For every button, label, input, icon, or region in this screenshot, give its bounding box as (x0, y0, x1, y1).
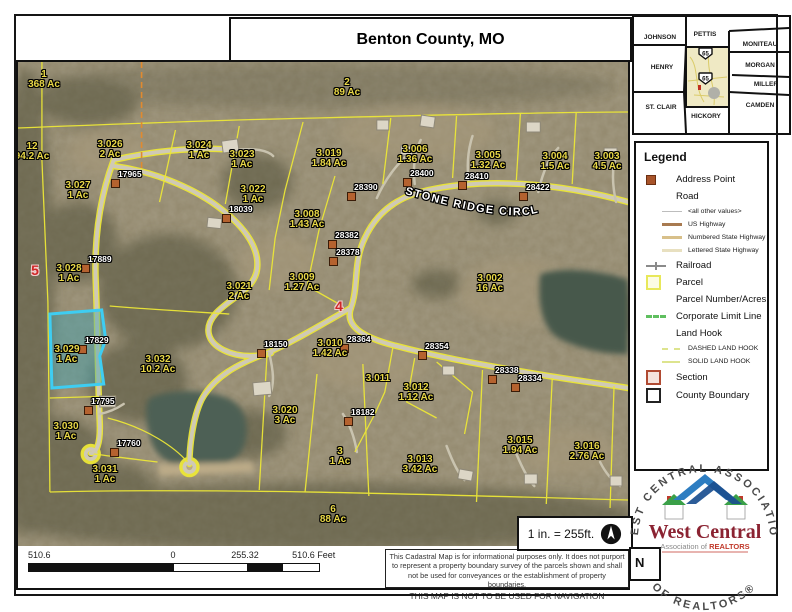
parcel-label-3.016[interactable]: 3.0162.76 Ac (570, 442, 605, 462)
parcel-label-3.008[interactable]: 3.0081.43 Ac (290, 210, 325, 230)
other-road-symbol (662, 211, 682, 212)
address-point-symbol (646, 175, 656, 185)
address-point-label-17889: 17889 (88, 254, 112, 264)
legend-label-dashed-land-hook: DASHED LAND HOOK (688, 345, 758, 352)
legend-label-lettered-state-highway: Lettered State Highway (688, 247, 759, 254)
legend-label-county-boundary: County Boundary (676, 390, 749, 401)
address-point-28334[interactable] (511, 383, 520, 392)
parcel-label-12[interactable]: 1294.2 Ac (18, 142, 49, 162)
address-point-label-28364: 28364 (347, 334, 371, 344)
legend-label-us-highway: US Highway (688, 221, 725, 228)
inset-county-label: MONITEAU (743, 41, 778, 48)
logo-name: West Central (649, 521, 762, 543)
parcel-label-3.030[interactable]: 3.0301 Ac (53, 422, 78, 442)
county-locator-map: JOHNSON PETTIS MONITEAU HENRY MORGAN MIL… (634, 17, 789, 133)
parcel-label-3.004[interactable]: 3.0041.5 Ac (540, 152, 569, 172)
parcel-label-3.024[interactable]: 3.0241 Ac (186, 141, 211, 161)
address-point-28422[interactable] (519, 192, 528, 201)
parcel-label-3.010[interactable]: 3.0101.42 Ac (313, 339, 348, 359)
legend-label-solid-land-hook: SOLID LAND HOOK (688, 358, 750, 365)
us-highway-symbol (662, 223, 682, 226)
solid-land-hook-symbol (662, 361, 680, 363)
county-boundary-symbol (646, 388, 661, 403)
legend-panel: Legend Address Point Road <all other val… (634, 141, 769, 471)
inset-county-label: PETTIS (694, 31, 717, 38)
parcel-label-3.002[interactable]: 3.00216 Ac (477, 274, 503, 294)
parcel-label-3.009[interactable]: 3.0091.27 Ac (285, 273, 320, 293)
corporate-limit-symbol (646, 315, 666, 318)
address-point-17965[interactable] (111, 179, 120, 188)
scale-note-box: 1 in. = 255ft. (517, 516, 633, 551)
scale-bar-segments (28, 563, 320, 572)
address-point-label-28338: 28338 (495, 365, 519, 375)
parcel-label-3.020[interactable]: 3.0203 Ac (272, 406, 297, 426)
parcel-label-3.003[interactable]: 3.0034.5 Ac (592, 152, 621, 172)
inset-city-mark (698, 85, 701, 90)
scale-label-zero: 0 (170, 550, 175, 560)
section-symbol (646, 370, 661, 385)
map-footer-strip: 510.6 0 255.32 510.6 Feet This Cadastral… (18, 546, 628, 588)
inset-county-label: MORGAN (745, 62, 775, 69)
parcel-label-3.029[interactable]: 3.0291 Ac (54, 345, 79, 365)
parcel-symbol (646, 275, 661, 290)
scale-note-text: 1 in. = 255ft. (528, 527, 594, 541)
address-point-label-17829: 17829 (85, 335, 109, 345)
disclaimer-text: This Cadastral Map is for informational … (386, 552, 628, 590)
svg-text:65: 65 (702, 52, 709, 58)
parcel-label-1[interactable]: 1368 Ac (28, 70, 60, 90)
inset-county-label: MILLER (754, 81, 778, 88)
address-point-28400[interactable] (403, 178, 412, 187)
scale-bar: 510.6 0 255.32 510.6 Feet (28, 550, 318, 580)
legend-label-road: Road (676, 191, 699, 202)
address-point-label-28382: 28382 (335, 230, 359, 240)
county-locator-inset: JOHNSON PETTIS MONITEAU HENRY MORGAN MIL… (632, 15, 791, 135)
parcel-label-3.021[interactable]: 3.0212 Ac (226, 282, 251, 302)
map-canvas[interactable]: STONE RIDGE CIRCLE 1368 Ac289 Ac1294.2 A… (18, 62, 628, 546)
section-number-5: 5 (31, 262, 39, 278)
parcel-label-3.006[interactable]: 3.0061.36 Ac (398, 145, 433, 165)
address-point-28338[interactable] (488, 375, 497, 384)
legend-label-land-hook: Land Hook (676, 328, 722, 339)
numbered-state-highway-symbol (662, 236, 682, 239)
scale-label-right: 510.6 Feet (292, 550, 335, 560)
parcel-label-3.022[interactable]: 3.0221 Ac (240, 185, 265, 205)
address-point-28410[interactable] (458, 181, 467, 190)
logo-subtitle-realtors: REALTORS (709, 542, 750, 551)
scale-label-left: 510.6 (28, 550, 51, 560)
address-point-28378[interactable] (329, 257, 338, 266)
address-point-28390[interactable] (347, 192, 356, 201)
parcel-label-3.015[interactable]: 3.0151.94 Ac (503, 436, 538, 456)
logo-subtitle-prefix: Association of (660, 542, 709, 551)
parcel-label-3.028[interactable]: 3.0281 Ac (56, 264, 81, 284)
parcel-label-3.031[interactable]: 3.0311 Ac (92, 465, 117, 485)
address-point-label-28378: 28378 (336, 247, 360, 257)
parcel-label-3.026[interactable]: 3.0262 Ac (97, 140, 122, 160)
parcel-label-3.032[interactable]: 3.03210.2 Ac (141, 355, 176, 375)
parcel-label-3.027[interactable]: 3.0271 Ac (65, 181, 90, 201)
parcel-label-6[interactable]: 688 Ac (320, 505, 346, 525)
inset-lake (708, 87, 720, 99)
address-point-label-17795: 17795 (91, 396, 115, 406)
address-point-18182[interactable] (344, 417, 353, 426)
svg-text:65: 65 (702, 77, 709, 83)
address-point-17760[interactable] (110, 448, 119, 457)
page-title: Benton County, MO (356, 31, 504, 49)
inset-county-label: JOHNSON (644, 34, 676, 41)
legend-label-all-other-values: <all other values> (688, 208, 742, 215)
address-point-label-28390: 28390 (354, 182, 378, 192)
parcel-label-2[interactable]: 289 Ac (334, 78, 360, 98)
parcel-label-3[interactable]: 31 Ac (330, 447, 351, 467)
address-point-label-17965: 17965 (118, 169, 142, 179)
address-point-label-18150: 18150 (264, 339, 288, 349)
disclaimer-warning: THIS MAP IS NOT TO BE USED FOR NAVIGATIO… (386, 591, 628, 601)
map-frame: STONE RIDGE CIRCLE 1368 Ac289 Ac1294.2 A… (16, 60, 630, 590)
address-point-label-28422: 28422 (526, 182, 550, 192)
logo-ring-text-bottom: OF REALTORS® (649, 581, 758, 612)
dashed-land-hook-symbol (662, 348, 680, 350)
address-point-18039[interactable] (222, 214, 231, 223)
legend-label-parcel-number-acres: Parcel Number/Acres (676, 294, 766, 305)
svg-text:Association of REALTORS: Association of REALTORS (660, 542, 749, 551)
legend-label-address-point: Address Point (676, 174, 735, 185)
address-point-label-28354: 28354 (425, 341, 449, 351)
inset-county-label: HICKORY (691, 113, 721, 120)
address-point-label-28334: 28334 (518, 373, 542, 383)
legend-label-railroad: Railroad (676, 260, 711, 271)
parcel-label-3.023[interactable]: 3.0231 Ac (229, 150, 254, 170)
parcel-label-3.005[interactable]: 3.0051.32 Ac (471, 151, 506, 171)
inset-county-label: ST. CLAIR (645, 104, 676, 111)
disclaimer-box: This Cadastral Map is for informational … (385, 549, 629, 588)
address-point-17889[interactable] (81, 264, 90, 273)
section-number-4: 4 (335, 298, 343, 314)
parcel-label-3.011[interactable]: 3.011 (366, 374, 390, 384)
lettered-state-highway-symbol (662, 249, 682, 252)
address-point-label-28400: 28400 (410, 168, 434, 178)
railroad-symbol (646, 265, 666, 267)
legend-label-section: Section (676, 372, 708, 383)
map-label-layer: 1368 Ac289 Ac1294.2 Ac3.0262 Ac3.0241 Ac… (18, 62, 628, 546)
legend-label-parcel: Parcel (676, 277, 703, 288)
parcel-label-3.012[interactable]: 3.0121.12 Ac (399, 383, 434, 403)
legend-title: Legend (644, 150, 767, 164)
address-point-label-18182: 18182 (351, 407, 375, 417)
inset-county-label: CAMDEN (746, 102, 775, 109)
inset-county-label: HENRY (651, 64, 674, 71)
legend-label-corporate-limit-line: Corporate Limit Line (676, 311, 762, 322)
scale-label-mid: 255.32 (231, 550, 259, 560)
address-point-18150[interactable] (257, 349, 266, 358)
address-point-28354[interactable] (418, 351, 427, 360)
parcel-label-3.013[interactable]: 3.0133.42 Ac (403, 455, 438, 475)
parcel-label-3.019[interactable]: 3.0191.84 Ac (312, 149, 347, 169)
address-point-label-17760: 17760 (117, 438, 141, 448)
address-point-label-18039: 18039 (229, 204, 253, 214)
map-title-box: Benton County, MO (229, 17, 632, 62)
address-point-label-28410: 28410 (465, 171, 489, 181)
legend-label-numbered-state-highway: Numbered State Highway (688, 234, 765, 241)
west-central-realtors-logo: WEST CENTRAL ASSOCIATION OF REALTORS® We… (618, 452, 792, 612)
address-point-17795[interactable] (84, 406, 93, 415)
